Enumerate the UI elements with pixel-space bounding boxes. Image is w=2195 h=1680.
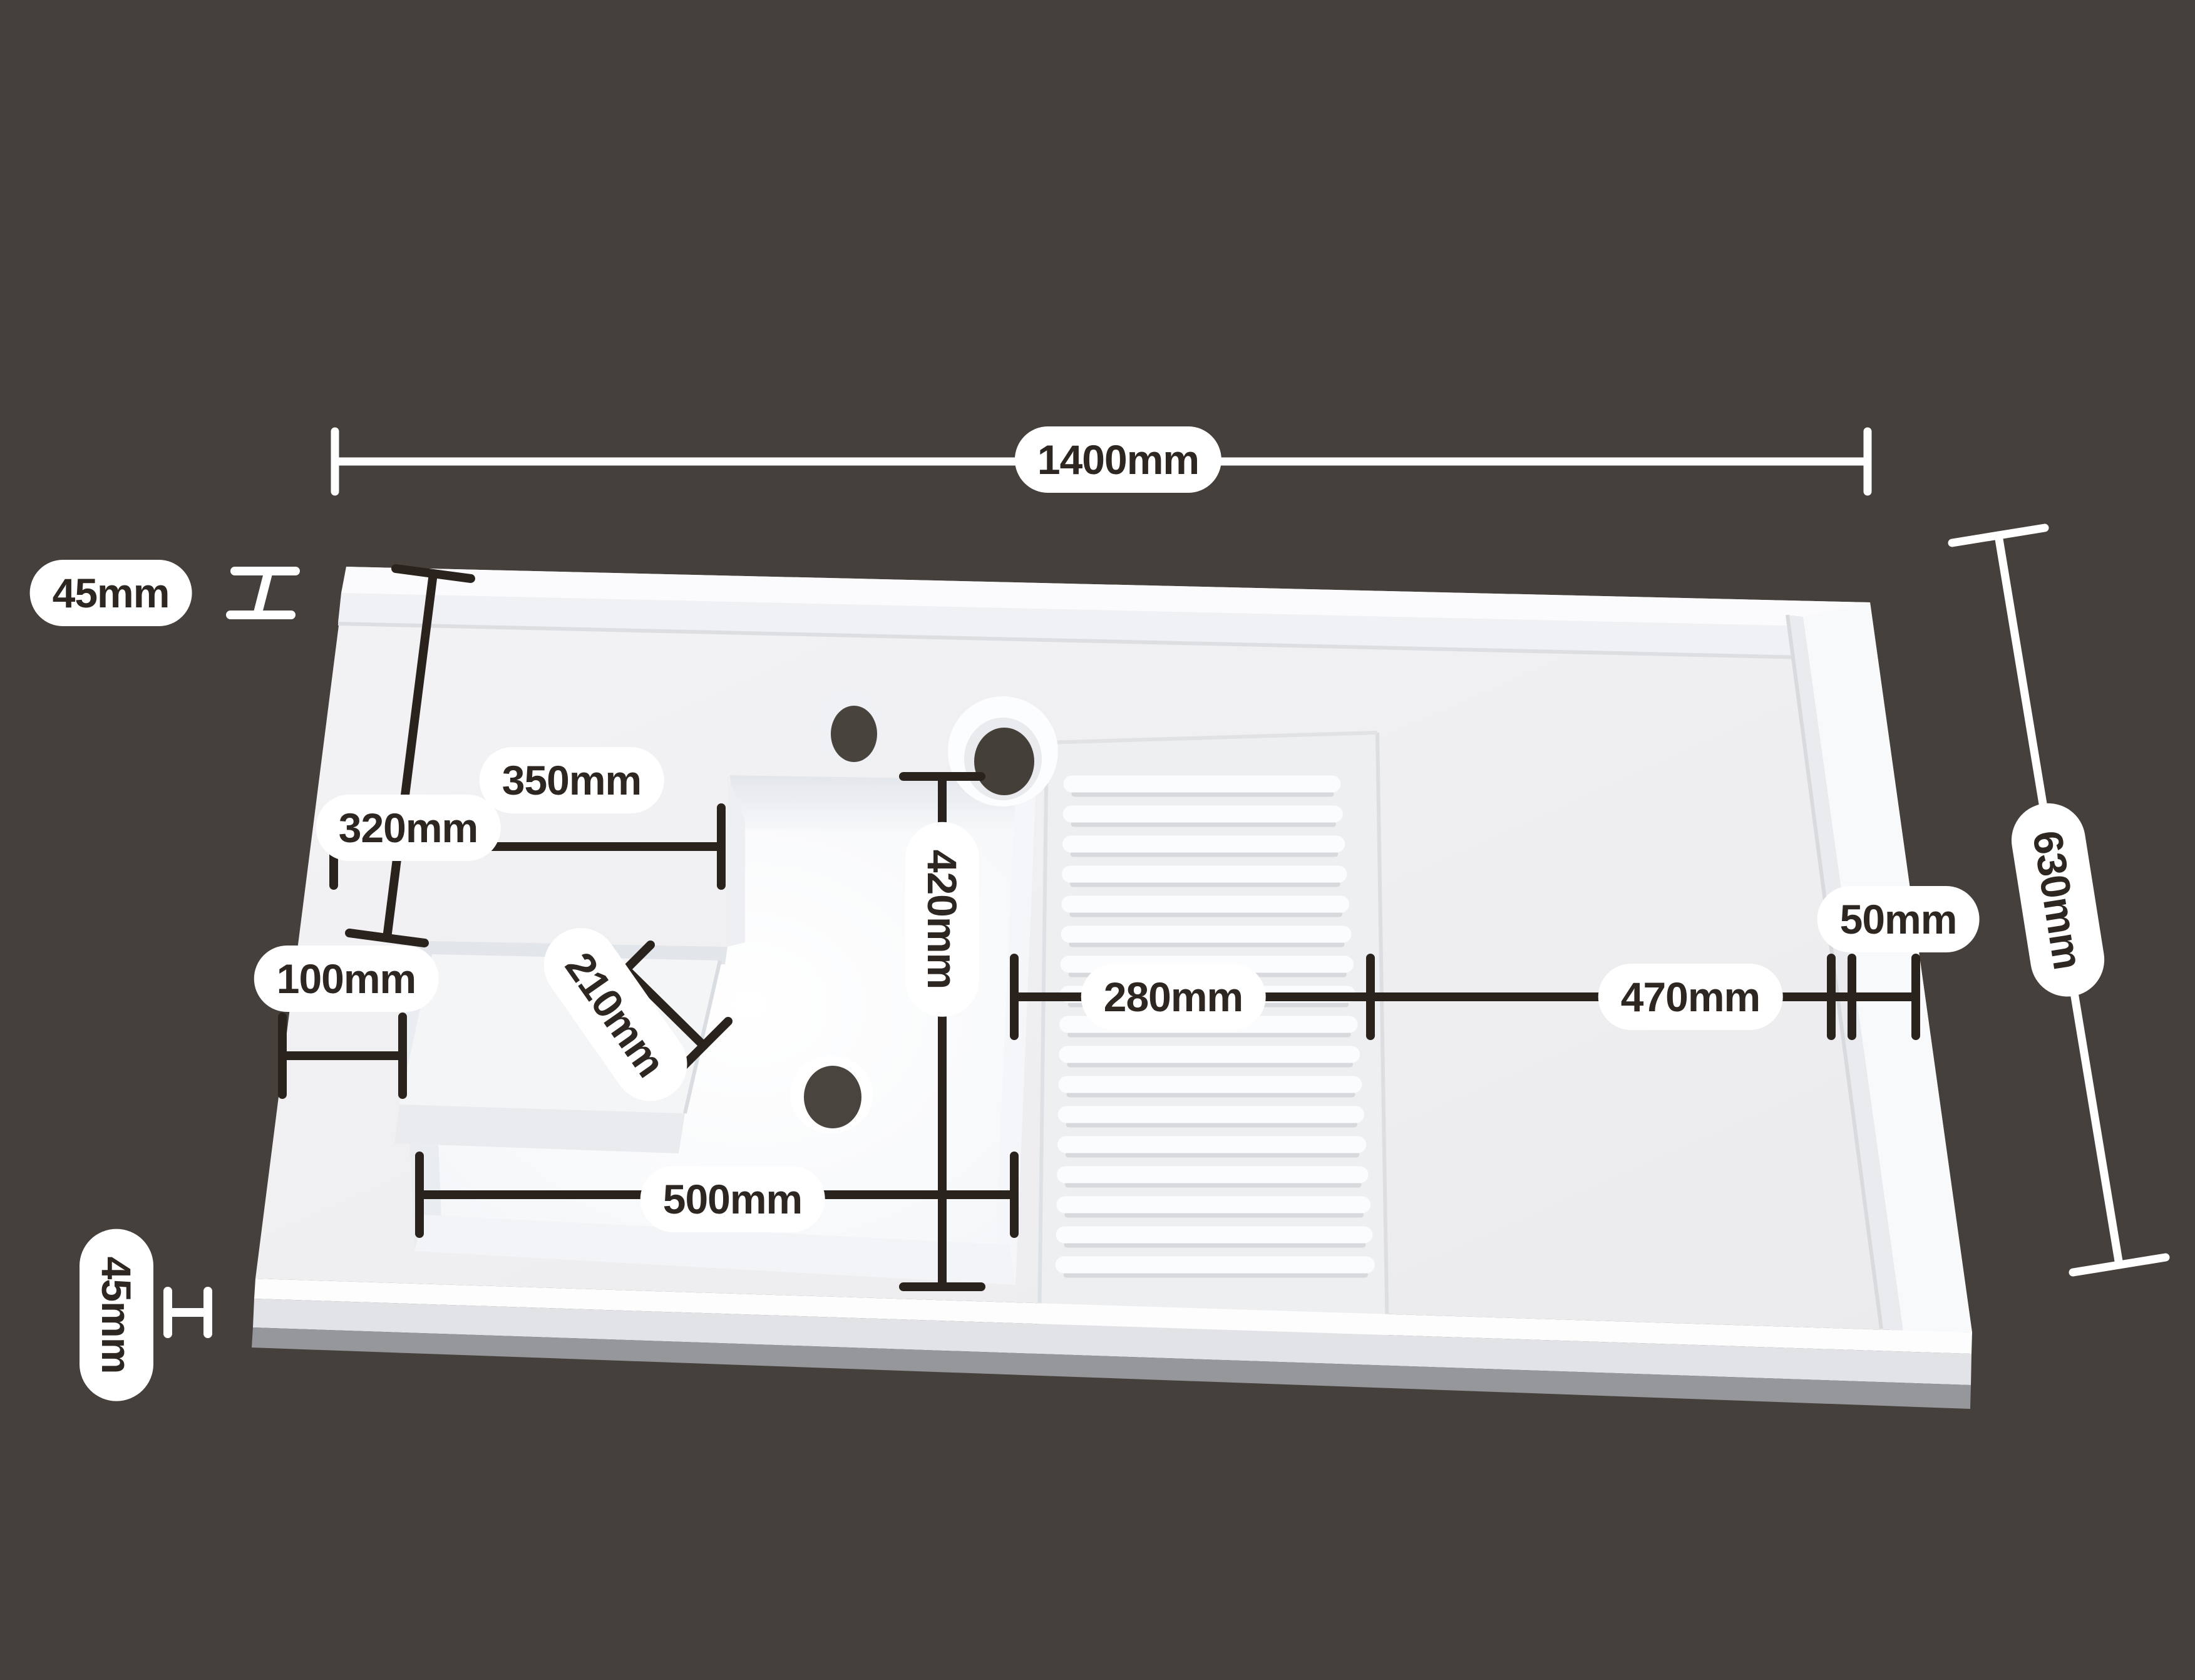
faucet-hole-1: [831, 706, 877, 762]
faucet-hole-2: [974, 728, 1034, 795]
dim-label-overall-width: 1400mm: [1015, 426, 1221, 493]
dim-label-drainboard-width: 470mm: [1598, 964, 1783, 1030]
thickness-icon-top: [230, 571, 296, 615]
dim-label-washboard-width: 280mm: [1081, 964, 1266, 1030]
dim-label-top-edge-thickness: 45mm: [30, 560, 192, 626]
thickness-icon-bottom: [168, 1291, 208, 1334]
dim-label-bowl-width: 500mm: [640, 1166, 825, 1232]
dim-label-deck-depth: 320mm: [316, 795, 501, 861]
diagram-canvas: 1400mm 45mm 350mm 320mm 100mm 210mm 420m…: [0, 0, 2195, 1680]
dim-label-bottom-edge-thickness: 45mm: [80, 1229, 153, 1401]
drain-hole: [804, 1066, 861, 1128]
dim-label-right-rim-width: 50mm: [1817, 886, 1980, 952]
dim-label-deck-width: 350mm: [480, 747, 664, 813]
dim-label-left-rim-width: 100mm: [254, 946, 439, 1012]
dim-label-bowl-depth: 420mm: [905, 822, 979, 1017]
